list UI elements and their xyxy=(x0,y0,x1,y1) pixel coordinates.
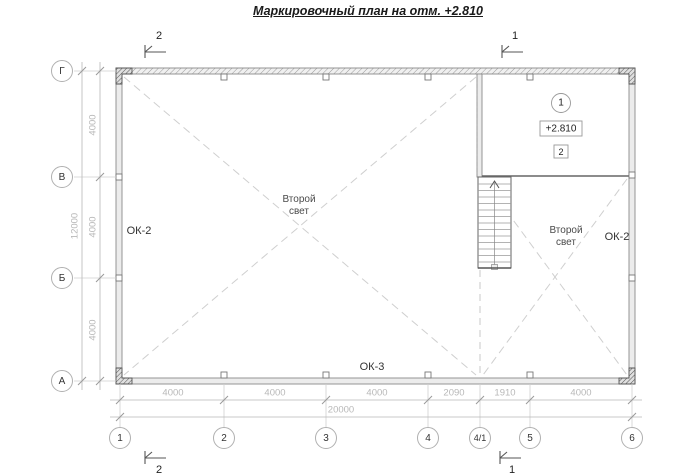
axis-label: 4/1 xyxy=(474,433,487,443)
corner-top-right xyxy=(619,68,635,84)
dim-left-total: 12000 xyxy=(70,213,81,239)
axis-label: Г xyxy=(59,66,64,77)
axis-label: В xyxy=(59,172,66,183)
axis-label: А xyxy=(59,376,66,387)
dim-left-2: 4000 xyxy=(88,216,99,237)
dim-bottom-total: 20000 xyxy=(328,405,354,416)
axis-label: 3 xyxy=(323,433,329,444)
elevation-mark: +2.810 xyxy=(546,123,577,134)
window-label-ok3: ОК-3 xyxy=(360,361,385,373)
dim-bottom-3: 4000 xyxy=(366,388,387,399)
section-number-bottom-right: 1 xyxy=(509,464,515,474)
top-wall xyxy=(116,68,635,74)
room-marker: 2 xyxy=(558,147,563,157)
staircase xyxy=(478,177,511,270)
axis-bubble-5: 5 xyxy=(519,427,541,449)
dim-bottom-2: 4000 xyxy=(264,388,285,399)
axis-label: 5 xyxy=(527,433,533,444)
axis-bubble-2: 2 xyxy=(213,427,235,449)
axis-bubble-4-1: 4/1 xyxy=(469,427,491,449)
second-light-label-right: Второй свет xyxy=(543,225,589,249)
dim-bottom-1: 4000 xyxy=(162,388,183,399)
second-light-label-left: Второй свет xyxy=(276,194,322,218)
axis-bubble-3: 3 xyxy=(315,427,337,449)
dim-bottom-5: 1910 xyxy=(494,388,515,399)
section-mark-top-right xyxy=(502,45,523,58)
axis-bubble-g: Г xyxy=(51,60,73,82)
section-number-bottom-left: 2 xyxy=(156,464,162,474)
section-mark-top-left xyxy=(145,45,166,58)
corner-bottom-left xyxy=(116,368,132,384)
axis-bubble-b: Б xyxy=(51,267,73,289)
right-wall xyxy=(629,68,635,384)
bottom-wall xyxy=(116,378,635,384)
dim-left-1: 4000 xyxy=(88,114,99,135)
room-number: 1 xyxy=(558,98,564,109)
dim-bottom-6: 4000 xyxy=(570,388,591,399)
axis-label: 4 xyxy=(425,433,431,444)
axis-bubble-1: 1 xyxy=(109,427,131,449)
window-label-ok2-left: ОК-2 xyxy=(127,225,152,237)
section-number-top-left: 2 xyxy=(156,30,162,42)
section-mark-bottom-left xyxy=(145,451,166,464)
dim-bottom-4: 2090 xyxy=(443,388,464,399)
axis-bubble-a: А xyxy=(51,370,73,392)
window-label-ok2-right: ОК-2 xyxy=(605,231,630,243)
section-mark-bottom-right xyxy=(500,451,521,464)
axis-bubble-4: 4 xyxy=(417,427,439,449)
axis-label: 2 xyxy=(221,433,227,444)
axis-label: Б xyxy=(59,273,66,284)
axis-label: 6 xyxy=(629,433,635,444)
axis-label: 1 xyxy=(117,433,123,444)
axis-bubble-6: 6 xyxy=(621,427,643,449)
floor-plan-canvas: Маркировочный план на отм. +2.810 xyxy=(0,0,700,474)
dim-left-3: 4000 xyxy=(88,319,99,340)
section-number-top-right: 1 xyxy=(512,30,518,42)
corner-bottom-right xyxy=(619,368,635,384)
plan-linework xyxy=(0,0,700,474)
axis-bubble-v: В xyxy=(51,166,73,188)
left-wall xyxy=(116,68,122,384)
